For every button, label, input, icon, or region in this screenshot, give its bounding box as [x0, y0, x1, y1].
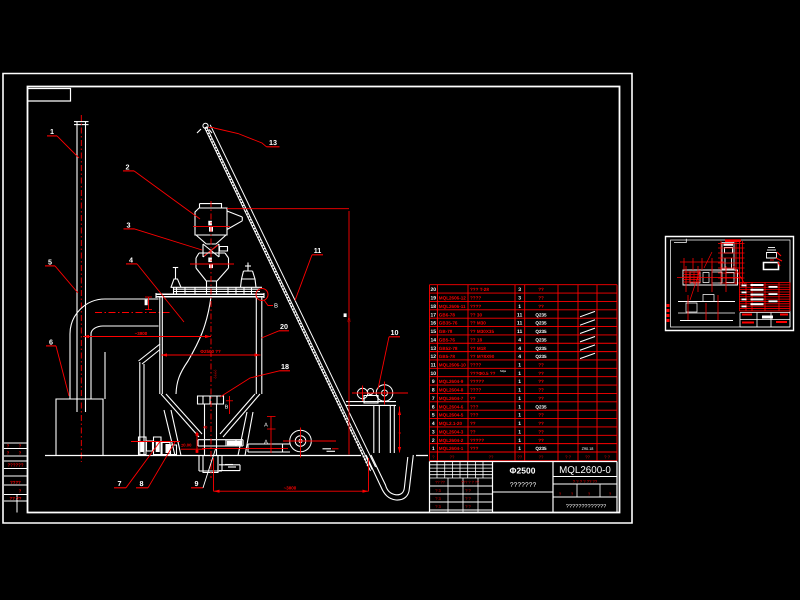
svg-text:5: 5 [432, 413, 435, 419]
svg-text:MQL2604-8: MQL2604-8 [439, 388, 464, 393]
svg-text:??: ?? [538, 379, 544, 384]
svg-text:GB5-78: GB5-78 [439, 354, 456, 359]
svg-text:7: 7 [118, 479, 122, 488]
svg-text:?????????????: ????????????? [566, 504, 606, 510]
svg-text:?: ? [19, 444, 22, 449]
svg-text:GB52-78: GB52-78 [439, 346, 458, 351]
svg-text:?? M30X35: ?? M30X35 [470, 329, 494, 334]
svg-text:MQL2606-11: MQL2606-11 [439, 304, 466, 309]
svg-text:20: 20 [431, 287, 437, 293]
svg-text:??: ?? [538, 363, 544, 368]
svg-text:~3800: ~3800 [284, 485, 297, 490]
svg-text:Q235: Q235 [535, 346, 547, 351]
svg-text:A: A [264, 423, 268, 429]
svg-text:??: ?? [538, 388, 544, 393]
svg-text:8: 8 [432, 388, 435, 394]
svg-text:11: 11 [517, 321, 523, 327]
svg-text:??: ?? [470, 421, 476, 426]
svg-text:MQL2604-1: MQL2604-1 [439, 446, 464, 451]
svg-text:??: ?? [538, 304, 544, 309]
svg-text:Q235: Q235 [535, 321, 547, 326]
svg-text:Q235: Q235 [535, 404, 547, 409]
svg-text:??: ?? [585, 455, 590, 460]
svg-text:?: ? [7, 450, 10, 455]
svg-text:1: 1 [518, 421, 521, 427]
svg-text:?? 18: ?? 18 [470, 337, 482, 342]
svg-text:???????: ??????? [510, 482, 537, 489]
svg-text:±0.00: ±0.00 [181, 442, 192, 447]
svg-text:3: 3 [127, 220, 131, 229]
svg-text:18: 18 [431, 304, 437, 310]
svg-text:1: 1 [518, 363, 521, 369]
svg-text:20: 20 [280, 322, 288, 331]
svg-text:10: 10 [391, 328, 399, 337]
svg-text:? ?: ? ? [465, 496, 471, 501]
svg-text:4: 4 [518, 346, 521, 352]
svg-text:15: 15 [431, 329, 437, 335]
svg-text:??: ?? [538, 413, 544, 418]
svg-text:Q235: Q235 [535, 354, 547, 359]
svg-text:??: ?? [538, 438, 544, 443]
svg-text:MQL2606-12: MQL2606-12 [439, 296, 467, 301]
svg-text:??: ?? [538, 287, 544, 292]
svg-text:? ?: ? ? [465, 504, 471, 509]
svg-text:13: 13 [431, 346, 437, 352]
svg-text:??: ?? [538, 296, 544, 301]
svg-text:GB5-76: GB5-76 [439, 337, 456, 342]
svg-text:??: ?? [538, 371, 544, 376]
svg-text:???Φ0.5 ??: ???Φ0.5 ?? [470, 371, 496, 376]
svg-text:? ?: ? ? [465, 488, 471, 493]
svg-text:6: 6 [432, 404, 435, 410]
svg-text:?? M?8X90: ?? M?8X90 [470, 354, 495, 359]
svg-text:Mqa: Mqa [500, 369, 506, 373]
svg-text:9: 9 [195, 479, 199, 488]
svg-text:11: 11 [431, 363, 437, 369]
svg-text:12: 12 [431, 354, 437, 360]
svg-text:MQL2604-7: MQL2604-7 [439, 396, 464, 401]
svg-text:1: 1 [518, 388, 521, 394]
svg-text:4: 4 [518, 337, 521, 343]
svg-text:1: 1 [518, 371, 521, 377]
svg-text:GB35-76: GB35-76 [439, 321, 458, 326]
svg-text:MQL2604-5: MQL2604-5 [439, 413, 464, 418]
svg-text:?????: ????? [470, 379, 484, 384]
svg-text:11: 11 [314, 246, 322, 255]
svg-text:Q235: Q235 [535, 329, 547, 334]
svg-text:??: ?? [470, 396, 476, 401]
svg-text:??: ?? [539, 455, 544, 460]
svg-text:? ?: ? ? [565, 455, 571, 460]
svg-text:1: 1 [50, 127, 54, 136]
svg-text:??: ?? [489, 455, 494, 460]
svg-text:??: ?? [450, 455, 455, 460]
svg-text:??: ?? [470, 429, 476, 434]
svg-text:1: 1 [518, 379, 521, 385]
svg-text:? 3: ? 3 [435, 496, 441, 501]
svg-text:?? ??: ?? ?? [10, 496, 22, 501]
svg-text:4: 4 [518, 354, 521, 360]
svg-text:GB6-78: GB6-78 [439, 312, 456, 317]
svg-text:?: ? [19, 489, 22, 494]
svg-text:?? M18: ?? M18 [470, 346, 486, 351]
svg-text:MQL2604-6: MQL2604-6 [439, 404, 464, 409]
svg-text:????: ???? [470, 388, 481, 393]
svg-text:4: 4 [129, 255, 133, 264]
svg-text:????: ???? [213, 370, 218, 380]
svg-text:11: 11 [517, 329, 523, 335]
svg-text:??: ?? [538, 429, 544, 434]
svg-text:???: ??? [470, 446, 479, 451]
svg-text:2: 2 [126, 162, 130, 171]
svg-text:?: ? [7, 444, 10, 449]
svg-text:19: 19 [431, 296, 437, 302]
svg-text:8: 8 [140, 479, 144, 488]
svg-text:Z90.18: Z90.18 [582, 447, 594, 451]
svg-text:18: 18 [281, 362, 289, 371]
svg-text:B: B [274, 303, 278, 310]
svg-text:? 3: ? 3 [435, 504, 441, 509]
svg-text:??? T-28: ??? T-28 [470, 287, 489, 292]
svg-text:1: 1 [518, 304, 521, 310]
svg-text:Q235: Q235 [535, 312, 547, 317]
svg-text:11: 11 [517, 312, 523, 318]
svg-text:17: 17 [431, 312, 437, 318]
svg-text:?? ??: ?? ?? [435, 481, 445, 485]
svg-text:14: 14 [431, 337, 437, 343]
svg-text:MQL2604-2: MQL2604-2 [439, 438, 464, 443]
svg-text:Φ2500: Φ2500 [510, 466, 536, 476]
svg-text:1: 1 [518, 438, 521, 444]
svg-text:A: A [264, 440, 268, 446]
svg-text:? 3: ? 3 [435, 488, 441, 493]
svg-text:Q235: Q235 [535, 446, 547, 451]
svg-text:GB-78: GB-78 [439, 329, 453, 334]
svg-text:1: 1 [518, 413, 521, 419]
svg-text:MQL2606-10: MQL2606-10 [439, 363, 467, 368]
svg-text:??: ?? [538, 396, 544, 401]
svg-text:40: 40 [203, 426, 207, 430]
svg-text:3: 3 [432, 429, 435, 435]
svg-text:MQL2600-0: MQL2600-0 [559, 465, 611, 476]
svg-text:5: 5 [48, 257, 52, 266]
svg-text:Φ2500 ??: Φ2500 ?? [200, 349, 221, 354]
svg-text:~3800: ~3800 [135, 331, 148, 336]
svg-text:10: 10 [431, 371, 437, 377]
svg-text:??: ?? [517, 455, 522, 460]
svg-text:B: B [225, 405, 229, 411]
svg-text:?? 30: ?? 30 [470, 312, 482, 317]
svg-text:1: 1 [518, 404, 521, 410]
svg-text:MQL2604-3: MQL2604-3 [439, 429, 464, 434]
svg-text:7: 7 [432, 396, 435, 402]
svg-text:3: 3 [518, 287, 521, 293]
svg-text:???: ??? [470, 413, 479, 418]
svg-text:1: 1 [432, 446, 435, 452]
svg-text:?? M30: ?? M30 [470, 321, 486, 326]
svg-text:? ? ? ? ?? ??: ? ? ? ? ?? ?? [573, 479, 598, 484]
svg-text:9: 9 [432, 379, 435, 385]
svg-text:6: 6 [49, 337, 53, 346]
svg-text:MQL2604-9: MQL2604-9 [439, 379, 464, 384]
svg-text:??: ?? [538, 421, 544, 426]
svg-text:????: ???? [10, 480, 21, 485]
svg-text:????: ???? [470, 363, 481, 368]
svg-text:16: 16 [431, 321, 437, 327]
svg-text:3: 3 [518, 296, 521, 302]
svg-text:Q235: Q235 [535, 337, 547, 342]
svg-text:45: 45 [347, 318, 352, 323]
svg-text:?????: ????? [470, 438, 484, 443]
svg-text:4: 4 [432, 421, 435, 427]
svg-text:????: ???? [470, 296, 481, 301]
svg-text:?: ? [19, 450, 22, 455]
svg-text:1: 1 [518, 396, 521, 402]
svg-text:2: 2 [432, 438, 435, 444]
svg-text:1: 1 [518, 446, 521, 452]
svg-text:? ?: ? ? [604, 455, 610, 460]
svg-text:??????: ?????? [7, 463, 23, 468]
svg-text:????: ???? [470, 304, 481, 309]
svg-text:1: 1 [518, 429, 521, 435]
svg-text:??? ? ? ??: ??? ? ? ?? [461, 481, 479, 485]
svg-text:13: 13 [269, 138, 277, 147]
svg-text:???: ??? [470, 404, 479, 409]
svg-text:MQL2.1-20: MQL2.1-20 [439, 421, 463, 426]
